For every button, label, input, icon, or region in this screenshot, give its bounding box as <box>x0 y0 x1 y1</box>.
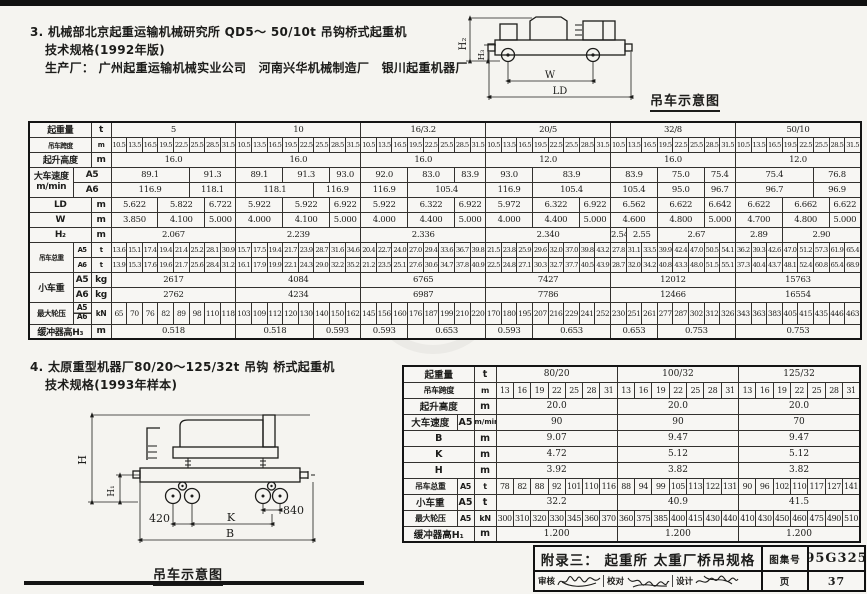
table-row: 最大轮压A5kN30031032033034536037036037538540… <box>403 510 860 526</box>
data-cell: 16 <box>513 382 530 398</box>
data-cell: 28.5 <box>454 137 470 152</box>
header-cell: 起升高度 <box>29 152 91 167</box>
data-cell: 22.1 <box>283 257 299 272</box>
header-cell: m/min <box>474 414 496 430</box>
data-cell: 10.5 <box>361 137 377 152</box>
header-cell: A5 A6 <box>73 302 91 324</box>
data-cell: 34.7 <box>439 257 455 272</box>
data-cell: 28.4 <box>205 257 221 272</box>
data-cell: 16.5 <box>142 137 158 152</box>
data-cell: 463 <box>845 302 861 324</box>
data-cell: 16.0 <box>111 152 236 167</box>
data-cell: 0.518 <box>111 324 236 339</box>
dim-k-label: K <box>227 511 236 524</box>
data-cell: 145 <box>361 302 377 324</box>
header-cell: A6 <box>73 182 111 197</box>
data-cell: 25.1 <box>392 257 408 272</box>
data-cell: 13.9 <box>111 257 127 272</box>
data-cell: 23.5 <box>376 257 392 272</box>
header-cell: 起升高度 <box>403 398 474 414</box>
atlas-number-label: 图集号 <box>763 547 809 570</box>
data-cell: 6.662 <box>782 197 829 212</box>
data-cell: 21.7 <box>173 257 189 272</box>
header-cell: W <box>29 212 91 227</box>
data-cell: 50.5 <box>704 242 720 257</box>
data-cell: 10.5 <box>611 137 627 152</box>
data-cell: 210 <box>454 302 470 324</box>
data-cell: 6.622 <box>657 197 704 212</box>
data-cell: 3.92 <box>496 462 617 478</box>
data-cell: 6.922 <box>579 197 610 212</box>
header-cell: 缓冲器高H₁ <box>403 526 474 542</box>
page-number: 37 <box>809 572 864 590</box>
header-cell: t <box>474 478 496 494</box>
data-cell: 375 <box>635 510 652 526</box>
data-cell: 110 <box>205 302 221 324</box>
data-cell: 4.400 <box>532 212 579 227</box>
data-cell: 40.5 <box>579 257 595 272</box>
data-cell: 22.5 <box>798 137 814 152</box>
data-cell: 22.5 <box>486 257 502 272</box>
data-cell: 31.6 <box>330 242 346 257</box>
header-cell: m <box>474 446 496 462</box>
data-cell: 326 <box>720 302 736 324</box>
data-cell: 96.7 <box>735 182 813 197</box>
data-cell: 430 <box>704 510 721 526</box>
data-cell: 21.5 <box>486 242 502 257</box>
data-cell: 12.0 <box>735 152 861 167</box>
data-cell: 2.340 <box>486 227 611 242</box>
data-cell: 20.0 <box>617 398 738 414</box>
data-cell: 2.336 <box>361 227 486 242</box>
data-cell: 31.1 <box>626 242 642 257</box>
data-cell: 30.6 <box>423 257 439 272</box>
data-cell: 5.12 <box>739 446 860 462</box>
section-3-line2: 技术规格(1992年版) <box>30 41 470 59</box>
data-cell: 31.5 <box>845 137 861 152</box>
data-cell: 116.9 <box>314 182 361 197</box>
header-cell: 吊车总重 <box>403 478 457 494</box>
table-row: 大车速度 m/minA589.191.389.191.393.092.083.0… <box>29 167 861 182</box>
data-cell: 5.000 <box>704 212 735 227</box>
data-cell: 141 <box>843 478 860 494</box>
data-cell: 75.0 <box>657 167 704 182</box>
data-cell: 302 <box>689 302 705 324</box>
table-row: 起升高度m16.016.016.012.016.012.0 <box>29 152 861 167</box>
data-cell: 16.5 <box>267 137 283 152</box>
data-cell: 20/5 <box>486 122 611 137</box>
title-block: 附录三： 起重所 太重厂桥吊规格 图集号 95G325 审核 校对 设计 页 3 <box>533 545 866 592</box>
data-cell: 89.1 <box>236 167 283 182</box>
data-cell: 125/32 <box>739 366 860 382</box>
qd-crane-spec-table: 起重量t51016/3.220/532/850/10吊车跨度m10.513.51… <box>28 121 862 340</box>
data-cell: 32.7 <box>548 257 564 272</box>
data-cell: 29.6 <box>532 242 548 257</box>
data-cell: 23.9 <box>298 242 314 257</box>
data-cell: 345 <box>565 510 582 526</box>
data-cell: 2762 <box>111 287 236 302</box>
data-cell: 21.4 <box>173 242 189 257</box>
data-cell: 6.722 <box>205 197 236 212</box>
header-cell: 缓冲器高H₃ <box>29 324 91 339</box>
section-4-line1: 4. 太原重型机器厂80/20～125/32t 吊钩 桥式起重机 <box>30 358 390 376</box>
data-cell: 47.0 <box>689 242 705 257</box>
data-cell: 93.0 <box>486 167 533 182</box>
data-cell: 4.400 <box>408 212 455 227</box>
data-cell: 28.5 <box>704 137 720 152</box>
data-cell: 80/20 <box>496 366 617 382</box>
header-cell: A5 <box>457 414 474 430</box>
data-cell: 6.622 <box>735 197 782 212</box>
data-cell: 42.6 <box>767 242 783 257</box>
data-cell: 82 <box>158 302 174 324</box>
data-cell: 28.5 <box>579 137 595 152</box>
header-cell: A6 <box>73 257 91 272</box>
data-cell: 91.3 <box>189 167 236 182</box>
data-cell: 55.1 <box>720 257 736 272</box>
data-cell: 187 <box>423 302 439 324</box>
page-label: 页 <box>763 572 809 590</box>
data-cell: 43.3 <box>673 257 689 272</box>
data-cell: 83.9 <box>532 167 610 182</box>
data-cell: 4.800 <box>657 212 704 227</box>
data-cell: 110 <box>791 478 808 494</box>
crane-diagram-bottom: H H₁ 420 840 K B <box>38 398 368 558</box>
data-cell: 25 <box>687 382 704 398</box>
header-cell: A5 <box>457 494 474 510</box>
data-cell: 440 <box>721 510 738 526</box>
data-cell: 156 <box>376 302 392 324</box>
data-cell: 241 <box>579 302 595 324</box>
data-cell: 41.5 <box>739 494 860 510</box>
data-cell: 320 <box>531 510 548 526</box>
data-cell: 88 <box>531 478 548 494</box>
data-cell: 7786 <box>486 287 611 302</box>
data-cell: 25.5 <box>439 137 455 152</box>
taiyuan-crane-spec-table-wrap: 起重量t80/20100/32125/32吊车跨度m13161922252831… <box>402 365 861 543</box>
data-cell: 34.2 <box>642 257 658 272</box>
data-cell: 17.9 <box>252 257 268 272</box>
data-cell: 90 <box>496 414 617 430</box>
header-cell: m <box>474 398 496 414</box>
data-cell: 13.5 <box>376 137 392 152</box>
data-cell: 410 <box>739 510 756 526</box>
data-cell: 118.1 <box>189 182 236 197</box>
table-row: Km4.725.125.12 <box>403 446 860 462</box>
data-cell: 9.47 <box>739 430 860 446</box>
data-cell: 1.200 <box>617 526 738 542</box>
data-cell: 28 <box>583 382 600 398</box>
data-cell: 43.9 <box>595 257 611 272</box>
data-cell: 31.5 <box>345 137 361 152</box>
data-cell: 83.9 <box>611 167 658 182</box>
data-cell: 12012 <box>611 272 736 287</box>
data-cell: 220 <box>470 302 486 324</box>
data-cell: 16.5 <box>517 137 533 152</box>
data-cell: 300 <box>496 510 513 526</box>
data-cell: 99 <box>652 478 669 494</box>
header-cell: 最大轮压 <box>29 302 73 324</box>
data-cell: 13.5 <box>127 137 143 152</box>
appendix-title: 附录三： 起重所 太重厂桥吊规格 <box>535 547 763 570</box>
data-cell: 91.3 <box>283 167 330 182</box>
data-cell: 28 <box>825 382 842 398</box>
data-cell: 93.0 <box>330 167 361 182</box>
data-cell: 34.6 <box>345 242 361 257</box>
data-cell: 89.1 <box>111 167 189 182</box>
data-cell: 40.4 <box>751 257 767 272</box>
data-cell: 2617 <box>111 272 236 287</box>
data-cell: 39.3 <box>751 242 767 257</box>
data-cell: 252 <box>595 302 611 324</box>
data-cell: 31.5 <box>470 137 486 152</box>
data-cell: 88 <box>617 478 634 494</box>
data-cell: 19.5 <box>782 137 798 152</box>
section-3-line1: 3. 机械部北京起重运输机械研究所 QD5～ 50/10t 吊钩桥式起重机 <box>30 23 470 41</box>
data-cell: 28.5 <box>829 137 845 152</box>
header-cell: 小车重 <box>29 272 73 302</box>
data-cell: 0.653 <box>611 324 658 339</box>
review-signature <box>556 574 602 589</box>
data-cell: 25.5 <box>689 137 705 152</box>
table-row: A6t13.915.317.619.621.725.628.431.216.11… <box>29 257 861 272</box>
data-cell: 98 <box>189 302 205 324</box>
data-cell: 415 <box>798 302 814 324</box>
data-cell: 60.8 <box>813 257 829 272</box>
header-cell: kN <box>91 302 111 324</box>
data-cell: 150 <box>330 302 346 324</box>
header-cell: H <box>403 462 474 478</box>
header-cell: 吊车跨度 <box>403 382 474 398</box>
signature-row: 审核 校对 设计 <box>535 572 763 590</box>
data-cell: 101 <box>565 478 582 494</box>
data-cell: 4.100 <box>283 212 330 227</box>
header-cell: m <box>91 227 111 242</box>
section-3-line3: 生产厂： 广州起重运输机械实业公司 河南兴华机械制造厂 银川起重机器厂 <box>30 59 470 77</box>
data-cell: 116.9 <box>361 182 408 197</box>
data-cell: 30.3 <box>532 257 548 272</box>
data-cell: 2.89 <box>735 227 782 242</box>
data-cell: 28.5 <box>330 137 346 152</box>
table-row: 起重量t51016/3.220/532/850/10 <box>29 122 861 137</box>
data-cell: 446 <box>829 302 845 324</box>
data-cell: 68.9 <box>845 257 861 272</box>
data-cell: 31.5 <box>595 137 611 152</box>
data-cell: 122 <box>704 478 721 494</box>
data-cell: 23.8 <box>501 242 517 257</box>
section-4-line2: 技术规格(1993年样本) <box>30 376 390 394</box>
header-cell: 大车速度 <box>403 414 457 430</box>
data-cell: 490 <box>825 510 842 526</box>
data-cell: 0.653 <box>408 324 486 339</box>
dim-b-label: B <box>226 527 234 540</box>
data-cell: 0.593 <box>361 324 408 339</box>
data-cell: 54.1 <box>720 242 736 257</box>
data-cell: 4.600 <box>611 212 658 227</box>
data-cell: 6.322 <box>532 197 579 212</box>
data-cell: 5.972 <box>486 197 533 212</box>
header-cell: t <box>91 257 111 272</box>
data-cell: 105 <box>669 478 686 494</box>
data-cell: 105.4 <box>532 182 610 197</box>
data-cell: 9.07 <box>496 430 617 446</box>
data-cell: 460 <box>791 510 808 526</box>
table-row: 吊车跨度m13161922252831131619222528311316192… <box>403 382 860 398</box>
data-cell: 21.7 <box>283 242 299 257</box>
data-cell: 261 <box>642 302 658 324</box>
data-cell: 19 <box>652 382 669 398</box>
data-cell: 5.000 <box>829 212 861 227</box>
data-cell: 24.8 <box>501 257 517 272</box>
data-cell: 96.7 <box>704 182 735 197</box>
data-cell: 76 <box>142 302 158 324</box>
table-row: Wm3.8504.1005.0004.0004.1005.0004.0004.4… <box>29 212 861 227</box>
section-4-heading: 4. 太原重型机器厂80/20～125/32t 吊钩 桥式起重机 技术规格(19… <box>30 358 390 394</box>
data-cell: 65.4 <box>845 242 861 257</box>
data-cell: 65.4 <box>829 257 845 272</box>
header-cell: m <box>91 152 111 167</box>
data-cell: 405 <box>782 302 798 324</box>
data-cell: 118 <box>220 302 236 324</box>
data-cell: 199 <box>439 302 455 324</box>
data-cell: 120 <box>283 302 299 324</box>
data-cell: 42.4 <box>673 242 689 257</box>
dim-420-label: 420 <box>149 512 170 525</box>
data-cell: 3.850 <box>111 212 158 227</box>
data-cell: 2.239 <box>236 227 361 242</box>
data-cell: 7427 <box>486 272 611 287</box>
data-cell: 19.4 <box>158 242 174 257</box>
data-cell: 450 <box>773 510 790 526</box>
data-cell: 83.0 <box>408 167 455 182</box>
table-row: 大车速度A5m/min909070 <box>403 414 860 430</box>
data-cell: 31 <box>600 382 617 398</box>
header-cell: m <box>91 212 111 227</box>
data-cell: 75.4 <box>735 167 813 182</box>
data-cell: 22.5 <box>548 137 564 152</box>
data-cell: 16.5 <box>642 137 658 152</box>
data-cell: 37.8 <box>454 257 470 272</box>
data-cell: 19.5 <box>657 137 673 152</box>
data-cell: 17.6 <box>142 257 158 272</box>
data-cell: 19.4 <box>267 242 283 257</box>
data-cell: 229 <box>564 302 580 324</box>
data-cell: 82 <box>513 478 530 494</box>
data-cell: 105.4 <box>408 182 486 197</box>
data-cell: 4.000 <box>236 212 283 227</box>
header-cell: 吊车跨度 <box>29 137 91 152</box>
dim-h2-label: H₂ <box>458 38 469 51</box>
data-cell: 25 <box>565 382 582 398</box>
data-cell: 2.067 <box>111 227 236 242</box>
data-cell: 140 <box>314 302 330 324</box>
data-cell: 16.5 <box>767 137 783 152</box>
data-cell: 37.7 <box>564 257 580 272</box>
table-row: 最大轮压A5 A6kN65707682899811011810310911212… <box>29 302 861 324</box>
data-cell: 22.5 <box>298 137 314 152</box>
dim-h3-label: H₃ <box>477 50 487 61</box>
header-cell: A5 <box>73 272 91 287</box>
data-cell: 33.6 <box>439 242 455 257</box>
data-cell: 83.9 <box>454 167 485 182</box>
data-cell: 51.2 <box>798 242 814 257</box>
data-cell: 6.622 <box>829 197 861 212</box>
data-cell: 25 <box>808 382 825 398</box>
data-cell: 180 <box>501 302 517 324</box>
data-cell: 310 <box>513 510 530 526</box>
data-cell: 28.7 <box>314 242 330 257</box>
data-cell: 28.1 <box>205 242 221 257</box>
table-row: A6116.9118.1118.1116.9116.9105.4116.9105… <box>29 182 861 197</box>
header-cell: A5 <box>73 242 91 257</box>
data-cell: 3.82 <box>617 462 738 478</box>
data-cell: 103 <box>236 302 252 324</box>
data-cell: 6.642 <box>704 197 735 212</box>
data-cell: 15.1 <box>127 242 143 257</box>
data-cell: 32.0 <box>548 242 564 257</box>
data-cell: 5.622 <box>111 197 158 212</box>
data-cell: 16.1 <box>236 257 252 272</box>
data-cell: 50/10 <box>735 122 861 137</box>
header-cell: A6 <box>73 287 91 302</box>
data-cell: 25.6 <box>189 257 205 272</box>
design-label: 设计 <box>672 575 693 587</box>
data-cell: 32/8 <box>611 122 736 137</box>
data-cell: 24.0 <box>392 242 408 257</box>
header-cell: K <box>403 446 474 462</box>
data-cell: 16.0 <box>361 152 486 167</box>
data-cell: 15763 <box>735 272 861 287</box>
data-cell: 10.5 <box>111 137 127 152</box>
data-cell: 312 <box>704 302 720 324</box>
data-cell: 4.000 <box>361 212 408 227</box>
data-cell: 16.0 <box>611 152 736 167</box>
data-cell: 5.000 <box>205 212 236 227</box>
data-cell: 43.7 <box>767 257 783 272</box>
data-cell: 40.8 <box>657 257 673 272</box>
data-cell: 51.5 <box>704 257 720 272</box>
data-cell: 16 <box>756 382 773 398</box>
header-cell: 起重量 <box>403 366 474 382</box>
data-cell: 4.100 <box>158 212 205 227</box>
dim-840-label: 840 <box>283 504 304 517</box>
data-cell: 25.9 <box>517 242 533 257</box>
table-row: Bm9.079.479.47 <box>403 430 860 446</box>
data-cell: 5.822 <box>158 197 205 212</box>
data-cell: 29.0 <box>314 257 330 272</box>
header-cell: m <box>91 197 111 212</box>
data-cell: 39.8 <box>579 242 595 257</box>
data-cell: 10 <box>236 122 361 137</box>
data-cell: 61.9 <box>829 242 845 257</box>
data-cell: 360 <box>583 510 600 526</box>
data-cell: 22 <box>669 382 686 398</box>
data-cell: 65 <box>111 302 127 324</box>
data-cell: 360 <box>617 510 634 526</box>
data-cell: 207 <box>532 302 548 324</box>
table-row: 小车重A5t32.240.941.5 <box>403 494 860 510</box>
data-cell: 43.2 <box>595 242 611 257</box>
header-cell: kg <box>91 287 111 302</box>
data-cell: 475 <box>808 510 825 526</box>
data-cell: 19 <box>531 382 548 398</box>
taiyuan-crane-spec-table: 起重量t80/20100/32125/32吊车跨度m13161922252831… <box>402 365 861 543</box>
data-cell: 4234 <box>236 287 361 302</box>
data-cell: 28.7 <box>611 257 627 272</box>
header-cell: kg <box>91 272 111 287</box>
data-cell: 39.9 <box>657 242 673 257</box>
data-cell: 15.3 <box>127 257 143 272</box>
